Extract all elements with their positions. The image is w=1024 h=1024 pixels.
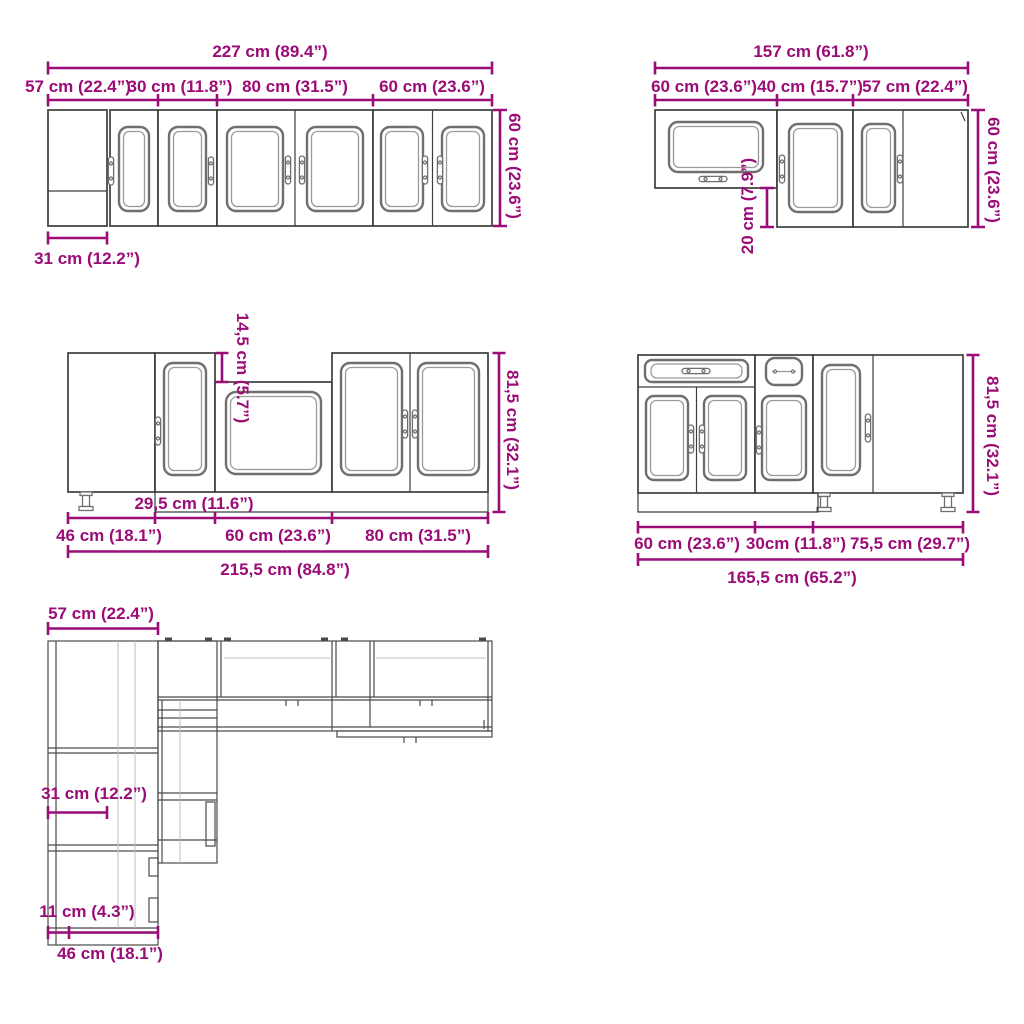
plinth bbox=[638, 493, 818, 512]
dim-line-corner-width bbox=[48, 622, 158, 635]
door-handle bbox=[688, 425, 693, 453]
door-handle bbox=[155, 417, 160, 445]
dim-line-bottom-offset bbox=[760, 188, 774, 227]
dim-line-height bbox=[967, 355, 980, 512]
dim-label-height: 81,5 cm (32.1”) bbox=[503, 370, 522, 490]
cabinet-line-art bbox=[655, 110, 968, 227]
drawer-handle bbox=[682, 368, 710, 373]
dim-label-segment-80: 80 cm (31.5”) bbox=[242, 77, 348, 96]
dim-label-overall-width: 215,5 cm (84.8”) bbox=[220, 560, 349, 579]
wall-cabinet-row-right: 157 cm (61.8”) 60 cm (23.6”) 40 cm (15.7… bbox=[651, 42, 1003, 254]
door-handle bbox=[779, 155, 784, 183]
dim-label-corner-width: 57 cm (22.4”) bbox=[48, 604, 154, 623]
dim-line-segments bbox=[68, 512, 488, 524]
adjustable-leg bbox=[817, 493, 831, 512]
plan-corner-unit bbox=[158, 641, 217, 863]
dim-label-height: 60 cm (23.6”) bbox=[505, 113, 524, 219]
corner-wall-cabinet-57 bbox=[853, 110, 968, 227]
corner-base-cabinet-75 bbox=[813, 355, 963, 493]
dim-line-overall-width bbox=[48, 62, 492, 75]
dim-label-segment-60: 60 cm (23.6”) bbox=[379, 77, 485, 96]
dim-label-segment-60: 60 cm (23.6”) bbox=[651, 77, 757, 96]
base-cabinet-row-right: 81,5 cm (32.1”) 60 cm (23.6”) 30cm (11.8… bbox=[634, 355, 1002, 587]
dim-label-overall-width: 165,5 cm (65.2”) bbox=[727, 568, 856, 587]
dim-label-segment-60: 60 cm (23.6”) bbox=[634, 534, 740, 553]
dim-label-segment-57: 57 cm (22.4”) bbox=[25, 77, 131, 96]
dim-label-segment-46: 46 cm (18.1”) bbox=[56, 526, 162, 545]
product-dimension-image: 227 cm (89.4”) 57 cm (22.4”) 30 cm (11.8… bbox=[0, 0, 1024, 1024]
door-handle bbox=[299, 156, 304, 184]
cabinet-line-art bbox=[68, 353, 488, 512]
dim-line-sink-drop bbox=[216, 353, 229, 382]
door-front-mark bbox=[149, 898, 158, 922]
dim-line-blind-width bbox=[48, 806, 107, 819]
cabinet-line-art bbox=[638, 355, 963, 512]
dim-line-height bbox=[971, 110, 985, 227]
dim-label-segment-30: 30 cm (11.8”) bbox=[128, 77, 233, 96]
door-front-mark bbox=[149, 858, 158, 876]
dim-line-overall-width bbox=[655, 62, 968, 75]
dim-line-height bbox=[493, 110, 507, 226]
dim-label-blind-width: 31 cm (12.2”) bbox=[34, 249, 140, 268]
door-handle bbox=[865, 414, 870, 442]
dim-label-overall-width: 227 cm (89.4”) bbox=[212, 42, 327, 61]
door-handle bbox=[108, 157, 113, 185]
corner-side-panel-46 bbox=[68, 353, 155, 492]
dim-line-overall-width bbox=[68, 545, 488, 558]
door-handle bbox=[897, 155, 902, 183]
wall-cabinet-row-left: 227 cm (89.4”) 57 cm (22.4”) 30 cm (11.8… bbox=[25, 42, 524, 268]
dim-label-height: 81,5 cm (32.1”) bbox=[983, 376, 1002, 496]
dim-label-segment-40: 40 cm (15.7”) bbox=[757, 77, 863, 96]
dim-label-segment-57: 57 cm (22.4”) bbox=[862, 77, 968, 96]
door-handle bbox=[437, 156, 442, 184]
dim-label-height: 60 cm (23.6”) bbox=[984, 117, 1003, 223]
dim-label-bottom-offset: 20 cm (7.9”) bbox=[738, 158, 757, 254]
adjustable-leg bbox=[941, 493, 955, 512]
kitchen-dimensions-diagram: 227 cm (89.4”) 57 cm (22.4”) 30 cm (11.8… bbox=[0, 0, 1024, 1024]
dim-label-segment-60: 60 cm (23.6”) bbox=[225, 526, 331, 545]
dim-line-overall-width bbox=[638, 553, 963, 566]
dim-label-gap-depth: 11 cm (4.3”) bbox=[39, 902, 134, 921]
dim-label-overall-width: 157 cm (61.8”) bbox=[753, 42, 868, 61]
door-handle bbox=[285, 156, 290, 184]
door-handle bbox=[208, 157, 213, 185]
door-handle bbox=[412, 410, 417, 438]
dim-line-segments bbox=[638, 521, 963, 534]
door-handle bbox=[699, 176, 727, 181]
dim-label-unit-depth: 46 cm (18.1”) bbox=[57, 944, 163, 963]
base-cabinet-row-left: 14,5 cm (5.7”) 81,5 cm (32.1”) 29,5 cm (… bbox=[56, 313, 522, 579]
dim-label-segment-80: 80 cm (31.5”) bbox=[365, 526, 471, 545]
dim-line-blind-width bbox=[48, 232, 107, 245]
dim-label-blind-width: 31 cm (12.2”) bbox=[41, 784, 147, 803]
adjustable-leg bbox=[79, 492, 93, 511]
dim-label-door-unit: 29,5 cm (11.6”) bbox=[134, 494, 253, 513]
dim-label-segment-75: 75,5 cm (29.7”) bbox=[850, 534, 970, 553]
door-handle bbox=[699, 425, 704, 453]
drawer-base-cabinet-30 bbox=[755, 355, 813, 493]
cabinet-line-art bbox=[48, 110, 492, 226]
plan-view: 57 cm (22.4”) 31 cm (12.2”) 11 cm (4.3”)… bbox=[39, 604, 492, 963]
door-handle bbox=[422, 156, 427, 184]
corner-blind-panel bbox=[48, 110, 107, 226]
door-handle bbox=[756, 426, 761, 454]
door-handle bbox=[402, 410, 407, 438]
dim-label-sink-drop: 14,5 cm (5.7”) bbox=[233, 313, 252, 424]
dim-label-segment-30: 30cm (11.8”) bbox=[746, 534, 846, 553]
